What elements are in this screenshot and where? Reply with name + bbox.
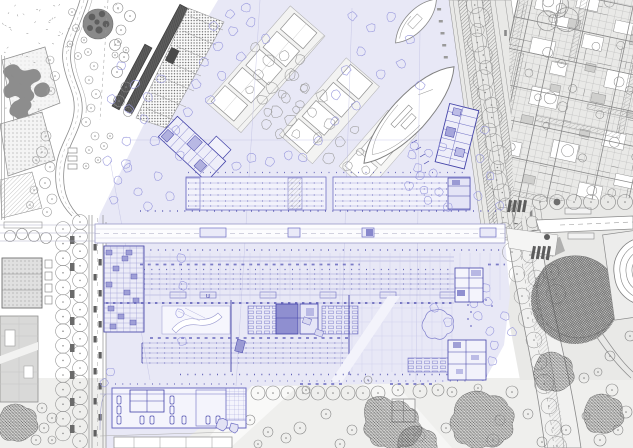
svg-text:u: u (206, 293, 210, 300)
